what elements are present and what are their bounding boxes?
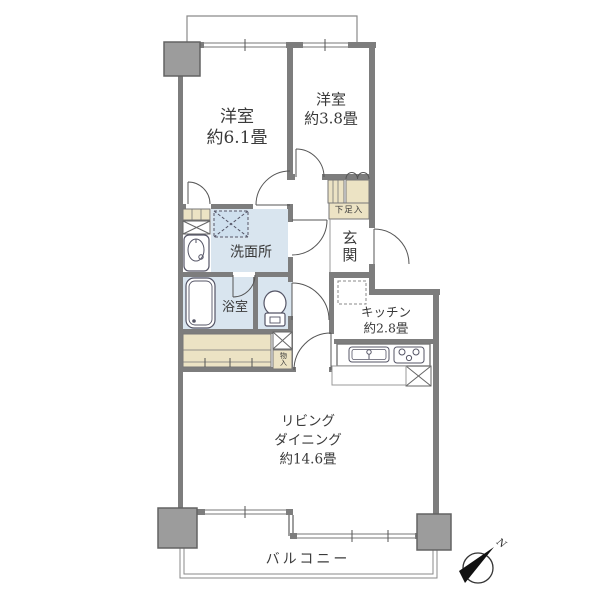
- vanity-sink-icon: [184, 235, 209, 271]
- window-living-right: [297, 530, 415, 542]
- living-line1: リビング: [274, 413, 342, 432]
- washroom-shelf: [183, 209, 210, 220]
- label-living-dining: リビング ダイニング 約14.6畳: [274, 413, 342, 470]
- floor-plan: N 洋室 約6.1畳 洋室 約3.8畳 洗面所 浴室 玄関 下足入 物入 キッチ…: [0, 0, 600, 600]
- kitchen-sink-icon: [349, 347, 389, 362]
- door-living: [294, 333, 331, 370]
- counter-front: [332, 366, 406, 385]
- bedroom1-name: 洋室: [206, 107, 267, 128]
- cross-box-kitchen: [406, 366, 431, 386]
- bedroom2-name: 洋室: [304, 90, 358, 109]
- compass-north-label: N: [493, 536, 508, 551]
- window-living-left: [205, 506, 286, 518]
- bedroom2-area: 約3.8畳: [304, 109, 358, 128]
- upper-outline: [187, 16, 357, 43]
- compass-icon: N: [459, 536, 509, 583]
- kitchen-name: キッチン: [361, 304, 411, 320]
- stove-icon: [394, 347, 424, 363]
- door-bedroom1-left: [188, 182, 210, 204]
- door-front-entrance: [374, 229, 409, 264]
- label-bathroom: 浴室: [222, 300, 248, 316]
- window-bedroom2-top: [303, 39, 348, 51]
- toilet-icon: [264, 291, 286, 326]
- living-line2: ダイニング: [274, 432, 342, 451]
- hall-closet: [183, 334, 271, 367]
- refrigerator-space: [338, 281, 366, 304]
- cross-box-washroom: [183, 221, 210, 234]
- label-washroom: 洗面所: [230, 244, 272, 262]
- window-bedroom1-top: [204, 39, 286, 51]
- label-kitchen: キッチン 約2.8畳: [361, 304, 411, 335]
- label-storage: 物入: [280, 352, 287, 366]
- label-shoe-cabinet: 下足入: [335, 206, 364, 217]
- cross-box-storage: [273, 332, 292, 349]
- label-bedroom1: 洋室 約6.1畳: [206, 107, 267, 150]
- label-entrance: 玄関: [340, 230, 359, 264]
- washing-machine-icon: [214, 211, 248, 237]
- bottom-wall-step: [289, 512, 293, 536]
- kitchen-area: 約2.8畳: [361, 320, 411, 336]
- door-toilet: [292, 283, 329, 320]
- living-area: 約14.6畳: [274, 450, 342, 469]
- label-balcony: バルコニー: [266, 551, 351, 569]
- bedroom1-area: 約6.1畳: [206, 128, 267, 149]
- label-bedroom2: 洋室 約3.8畳: [304, 90, 358, 128]
- door-bedroom1-right: [256, 171, 290, 205]
- door-washroom: [292, 220, 327, 255]
- door-bedroom2: [296, 149, 324, 177]
- floor-plan-drawing: N: [0, 0, 600, 600]
- bathtub-icon: [186, 278, 215, 328]
